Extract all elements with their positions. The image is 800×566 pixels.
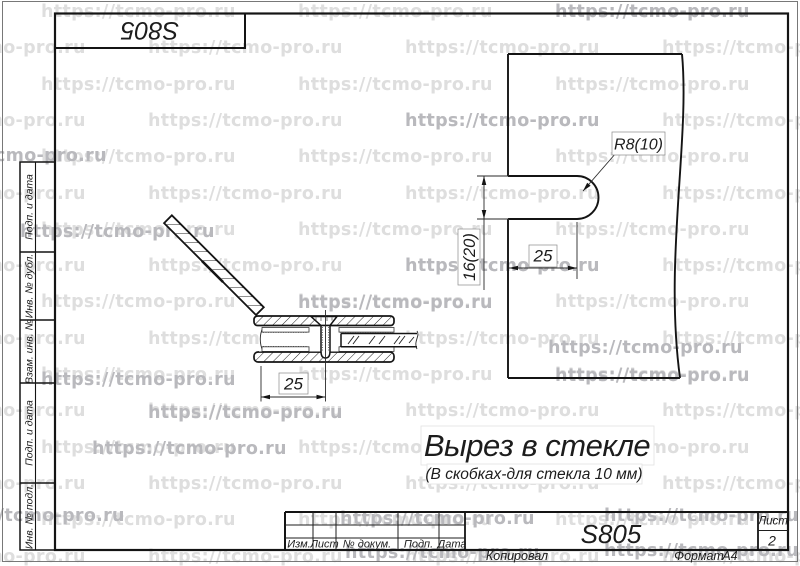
tb-footer-copied: Копировал (486, 549, 548, 563)
cutout-radius-dim: R8(10) (614, 137, 663, 154)
cutout-depth-dim: 25 (533, 247, 553, 266)
tb-sheet-label: Лист (757, 516, 788, 528)
tb-footer-format-label: Формат (674, 549, 724, 563)
side-label-podp-data-1: Подп. и дата (24, 174, 36, 240)
tb-col-dokum: № докум. (343, 539, 391, 551)
tb-footer-format-value: А4 (721, 549, 737, 563)
drawing-subtitle: (В скобках-для стекла 10 мм) (425, 466, 642, 483)
side-label-podp-data-2: Подп. и дата (24, 400, 36, 466)
drawing-title: Вырез в стекле (424, 428, 651, 463)
cutout-height-dim: 16(20) (461, 233, 479, 281)
tb-sheet-value: 2 (767, 533, 776, 549)
side-label-inv-podl: Инв. № подл. (24, 484, 36, 549)
section-view: 25 (164, 215, 418, 401)
tb-col-podp: Подп. (404, 539, 433, 551)
drawing-caption: Вырез в стекле (В скобках-для стекла 10 … (421, 426, 654, 484)
side-label-inv-dubl: Инв. № дубл. (24, 254, 36, 319)
side-column: Подп. и дата Инв. № дубл. Взам. инв. № П… (20, 162, 55, 550)
cutout-view: R8(10) 16(20) 25 (458, 54, 684, 378)
section-width-dim: 25 (283, 375, 303, 394)
page-frame: S805 (3, 2, 798, 562)
page: https://tcmo-pro.ruhttps://tcmo-pro.ruht… (0, 0, 800, 566)
tb-doc-number: S805 (581, 519, 642, 549)
drawing-svg: S805 Подп. и дата Инв. № дубл. Взам. инв… (0, 0, 800, 566)
corner-stamp-code: S805 (121, 16, 179, 44)
side-label-vzam-inv: Взам. инв. № (24, 319, 36, 384)
title-block: Изм. Лист № докум. Подп. Дата S805 Лист … (285, 512, 788, 563)
tb-col-list: Лист (309, 539, 338, 551)
tb-col-izm: Изм. (287, 539, 310, 551)
tb-col-data: Дата (435, 539, 466, 551)
